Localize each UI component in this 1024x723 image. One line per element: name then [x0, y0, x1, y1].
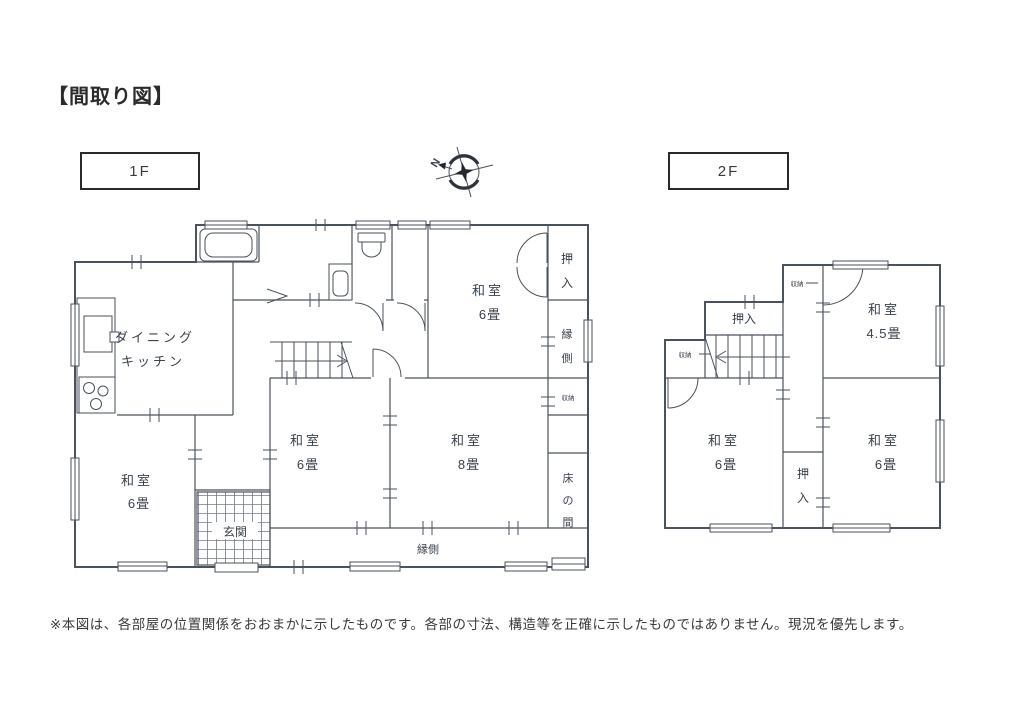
room-label-dining-kitchen: ダイニング — [115, 330, 195, 345]
compass-rose-icon: N — [420, 140, 494, 204]
washbasin-icon — [329, 264, 352, 300]
page-title: 【間取り図】 — [48, 80, 174, 109]
staircase-2f-icon — [705, 335, 790, 378]
room-label-shunou-west: 収納 — [679, 350, 692, 359]
sliding-door-chevron — [267, 289, 287, 303]
room-label-oshiire-south: 入 — [797, 491, 809, 505]
stove-icon — [79, 377, 115, 413]
compass-star — [454, 162, 474, 182]
room-label-oshiire-east: 押 — [561, 252, 573, 266]
room-label-engawa-east: 縁 — [562, 327, 573, 341]
door-arcs-1f — [267, 233, 547, 377]
room-label-washitsu-east: 和室 — [868, 433, 900, 448]
bathtub-icon — [200, 229, 257, 261]
wall-opening-ticks-2f — [699, 283, 830, 507]
room-size-washitsu-8: 8畳 — [458, 457, 480, 472]
room-label-washitsu-8: 和室 — [451, 433, 483, 448]
room-label-washitsu-west: 和室 — [708, 433, 740, 448]
floor-2f-tag-box: 2F — [668, 152, 789, 190]
room-label-shunou-top: 収納 — [791, 279, 804, 288]
floorplan-2f: 収納 押入 収納 和室 4.5畳 和室 6畳 押 入 和室 6畳 — [655, 250, 950, 540]
floorplan-1f: ダイニング キッチン 和室 6畳 押 入 縁 側 収納 和室 6畳 和室 8畳 … — [60, 212, 605, 580]
room-label-engawa-east: 側 — [562, 352, 573, 365]
compass-north-label: N — [429, 157, 443, 170]
door-arcs-2f — [668, 265, 863, 408]
room-label-oshiire-east: 入 — [561, 276, 573, 290]
room-label-dining-kitchen: キッチン — [121, 354, 185, 369]
room-size-washitsu-ne: 6畳 — [479, 307, 501, 322]
room-label-washitsu-45: 和室 — [868, 302, 900, 317]
room-label-genkan: 玄関 — [223, 524, 247, 539]
room-size-washitsu-45: 4.5畳 — [866, 326, 901, 341]
room-size-washitsu-west: 6畳 — [715, 457, 737, 472]
toilet-icon — [358, 233, 385, 257]
room-label-tokonoma: 床 — [563, 471, 574, 485]
room-label-engawa-south: 縁側 — [417, 542, 439, 556]
room-size-washitsu-center: 6畳 — [297, 457, 319, 472]
room-label-tokonoma: 間 — [563, 516, 574, 529]
floor-2f-tag-label: 2F — [718, 163, 740, 180]
room-size-washitsu-east: 6畳 — [875, 457, 897, 472]
room-label-shunou-east: 収納 — [562, 393, 575, 402]
room-size-washitsu-sw: 6畳 — [128, 496, 150, 511]
disclaimer-text: ※本図は、各部屋の位置関係をおおまかに示したものです。各部の寸法、構造等を正確に… — [50, 613, 1000, 633]
floor-1f-tag-label: 1F — [129, 163, 151, 180]
room-label-tokonoma: の — [563, 495, 574, 507]
room-label-oshiire-south: 押 — [797, 467, 809, 481]
room-label-washitsu-ne: 和室 — [472, 283, 504, 298]
room-label-washitsu-sw: 和室 — [121, 473, 153, 488]
room-label-oshiire-north: 押入 — [732, 312, 756, 326]
staircase-1f-icon — [270, 342, 353, 378]
room-label-washitsu-center: 和室 — [290, 433, 322, 448]
floor-1f-tag-box: 1F — [80, 152, 200, 190]
